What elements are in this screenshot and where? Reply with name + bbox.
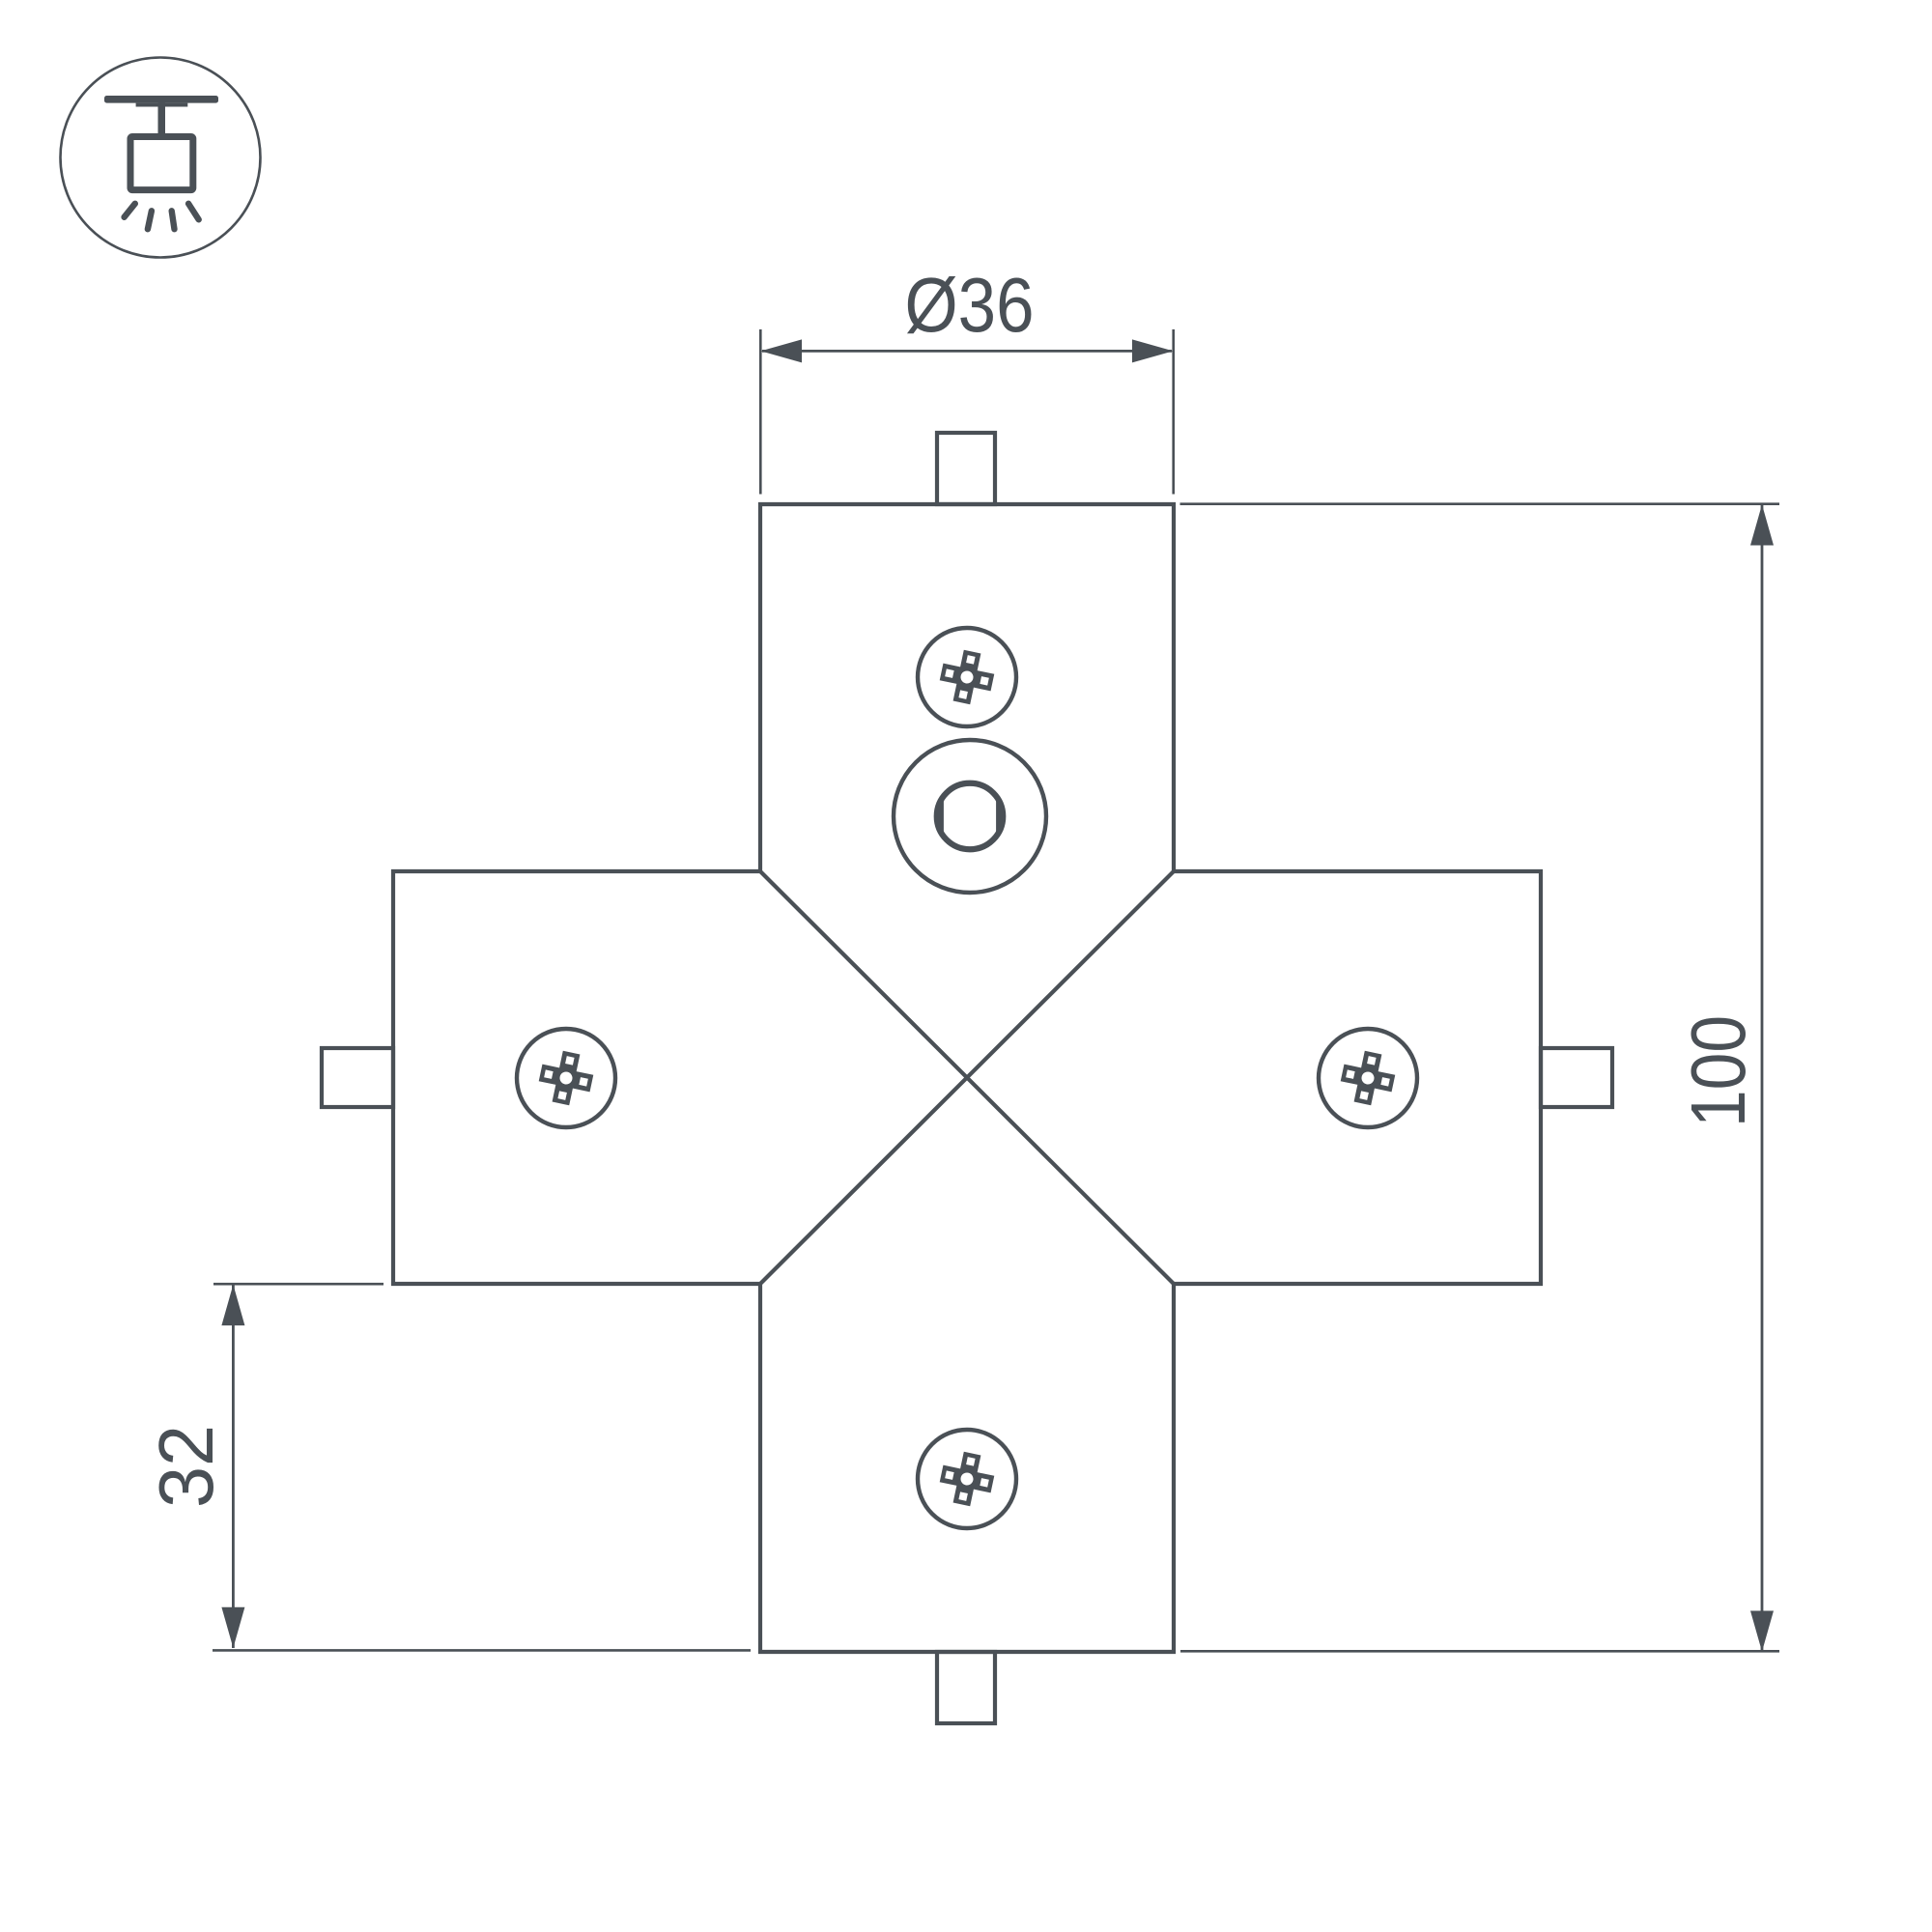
svg-text:32: 32 (143, 1425, 229, 1508)
svg-text:Ø36: Ø36 (905, 262, 1035, 348)
svg-text:100: 100 (1675, 1015, 1761, 1127)
